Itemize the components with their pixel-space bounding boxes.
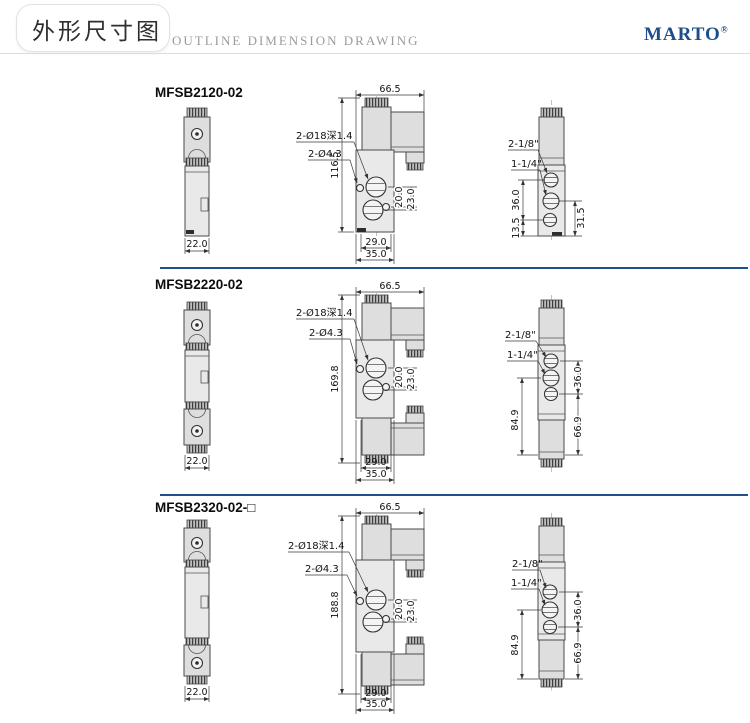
hole-label-1: 2-Ø18深1.4	[296, 307, 352, 319]
dim-value: 188.8	[330, 591, 341, 618]
thread-label-1: 2-1/8"	[505, 330, 536, 341]
dim-value: 66.9	[573, 642, 584, 663]
dim-value: 35.0	[365, 699, 386, 710]
model-label-2: MFSB2220-02	[155, 277, 243, 292]
dim-value: 22.0	[186, 456, 207, 467]
dim-value: 20.0	[394, 366, 405, 387]
thread-label-1: 2-1/8"	[508, 139, 539, 150]
dim-value: 29.0	[365, 237, 386, 248]
catalog-page: 外形尺寸图 OUTLINE DIMENSION DRAWING MARTO® M…	[0, 0, 750, 723]
dim-value: 66.5	[379, 502, 400, 513]
hole-label-1: 2-Ø18深1.4	[296, 130, 352, 142]
hole-label-2: 2-Ø4.3	[305, 563, 339, 575]
s1-front-width-dim: 22.0	[185, 238, 209, 254]
dim-value: 29.0	[365, 688, 386, 699]
dim-value: 66.5	[379, 281, 400, 292]
s1-side-view: 2-1/8" 1-1/4" 36.0 13.5 31.5	[508, 100, 587, 242]
s3-side-view: 2-1/8" 1-1/4" 36.0 66.9 84.9	[510, 513, 584, 692]
model-label-1: MFSB2120-02	[155, 85, 243, 100]
dim-value: 23.0	[406, 188, 417, 209]
dim-value: 13.5	[511, 217, 522, 238]
dim-value: 84.9	[510, 634, 521, 655]
model-label-3: MFSB2320-02-□	[155, 500, 255, 515]
dim-value: 35.0	[365, 469, 386, 480]
dim-value: 23.0	[406, 600, 417, 621]
thread-label-2: 1-1/4"	[511, 159, 542, 170]
dim-value: 29.0	[365, 457, 386, 468]
dim-value: 36.0	[573, 599, 584, 620]
thread-label-2: 1-1/4"	[507, 350, 538, 361]
dim-value: 31.5	[576, 207, 587, 228]
dimension-drawing-canvas: MFSB2120-02 22.0	[0, 0, 750, 723]
dim-value: 35.0	[365, 249, 386, 260]
hole-label-2: 2-Ø4.3	[309, 327, 343, 339]
dim-value: 22.0	[186, 239, 207, 250]
hole-label-1: 2-Ø18深1.4	[288, 540, 344, 552]
dim-value: 36.0	[573, 366, 584, 387]
s3-front-width-dim: 22.0	[185, 686, 209, 702]
dim-value: 66.5	[379, 84, 400, 95]
s3-front-view: 22.0	[184, 520, 210, 702]
hole-label-2: 2-Ø4.3	[308, 148, 342, 160]
s2-side-view: 2-1/8" 1-1/4" 36.0 66.9 84.9	[505, 295, 584, 472]
s1-front-view: 22.0	[184, 108, 210, 254]
dim-value: 23.0	[406, 368, 417, 389]
dim-value: 22.0	[186, 687, 207, 698]
dim-value: 20.0	[394, 598, 405, 619]
thread-label-1: 2-1/8"	[512, 559, 543, 570]
dim-value: 66.9	[573, 416, 584, 437]
s2-front-view: 22.0	[184, 302, 210, 471]
dim-value: 36.0	[511, 189, 522, 210]
thread-label-2: 1-1/4"	[511, 578, 542, 589]
s2-front-width-dim: 22.0	[185, 455, 209, 471]
s2-main-view: 66.5 169.8 2-Ø18深1.4 2-Ø4.3 20.0 23.0	[296, 281, 424, 484]
dim-value: 84.9	[510, 409, 521, 430]
s1-main-view: 66.5 116.5 2-Ø18深1.4 2-Ø4.3 20.0 23.0	[296, 84, 424, 264]
dim-value: 169.8	[330, 365, 341, 392]
s3-main-view: 66.5 188.8 2-Ø18深1.4 2-Ø4.3 20.0 23.0	[288, 502, 424, 714]
dim-value: 20.0	[394, 186, 405, 207]
s1-bottom-dims: 29.0 35.0	[356, 234, 394, 264]
